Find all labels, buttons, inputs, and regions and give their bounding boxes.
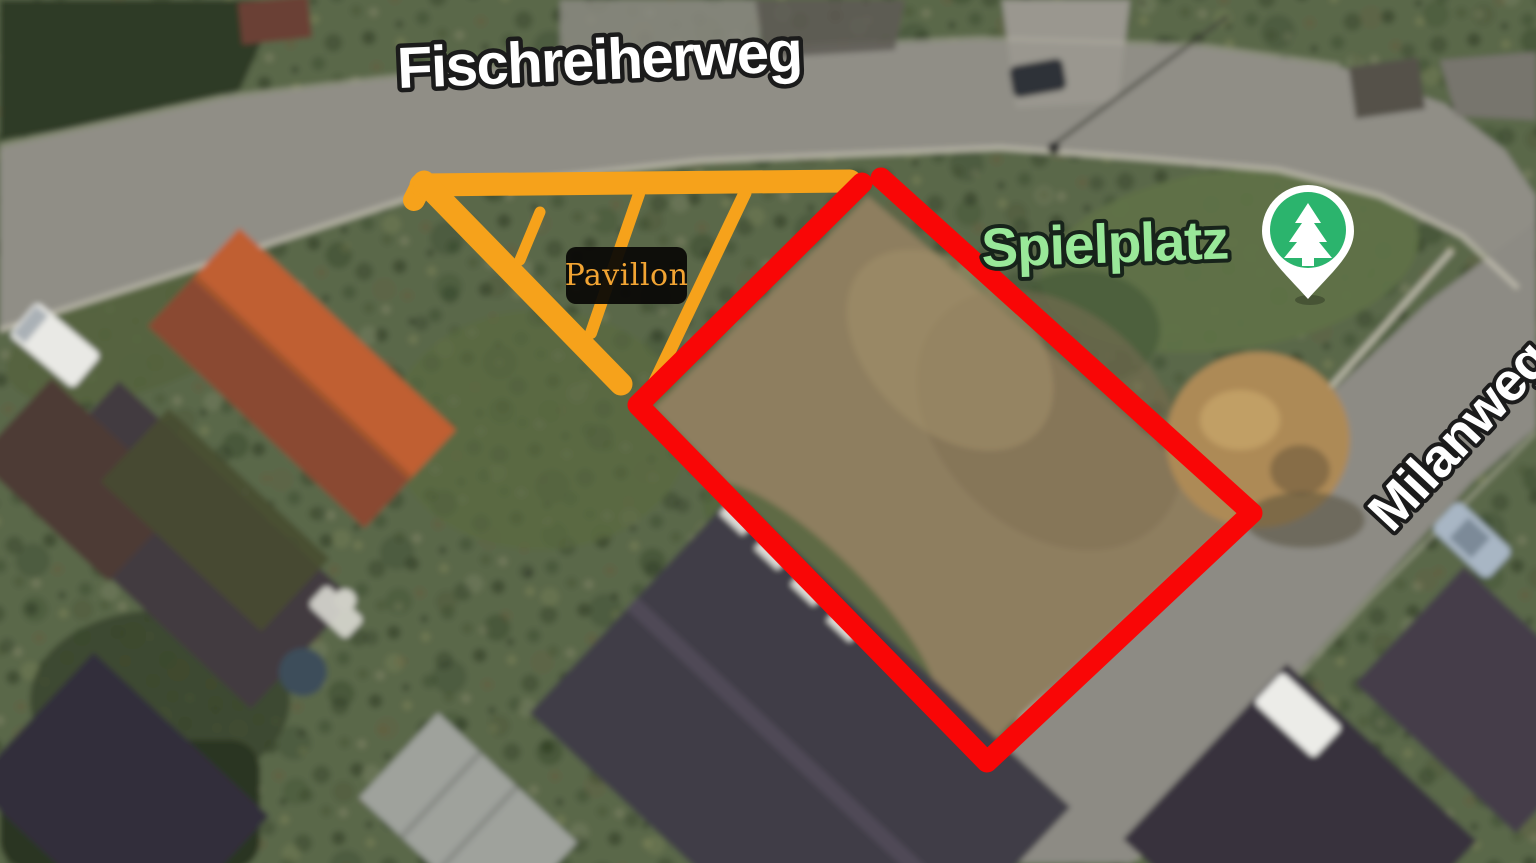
satellite-map-canvas[interactable]: Fischreiherweg Spielplatz Milanweg Pavil…: [0, 0, 1536, 863]
street-label-fischreiherweg: Fischreiherweg: [396, 19, 803, 101]
label-layer: Fischreiherweg Spielplatz Milanweg: [0, 0, 1536, 863]
pavilion-annotation-label: Pavillon: [566, 247, 687, 304]
park-marker-pin[interactable]: [1262, 185, 1354, 305]
poi-label-spielplatz[interactable]: Spielplatz: [980, 208, 1229, 279]
street-label-milanweg: Milanweg: [1357, 329, 1536, 542]
